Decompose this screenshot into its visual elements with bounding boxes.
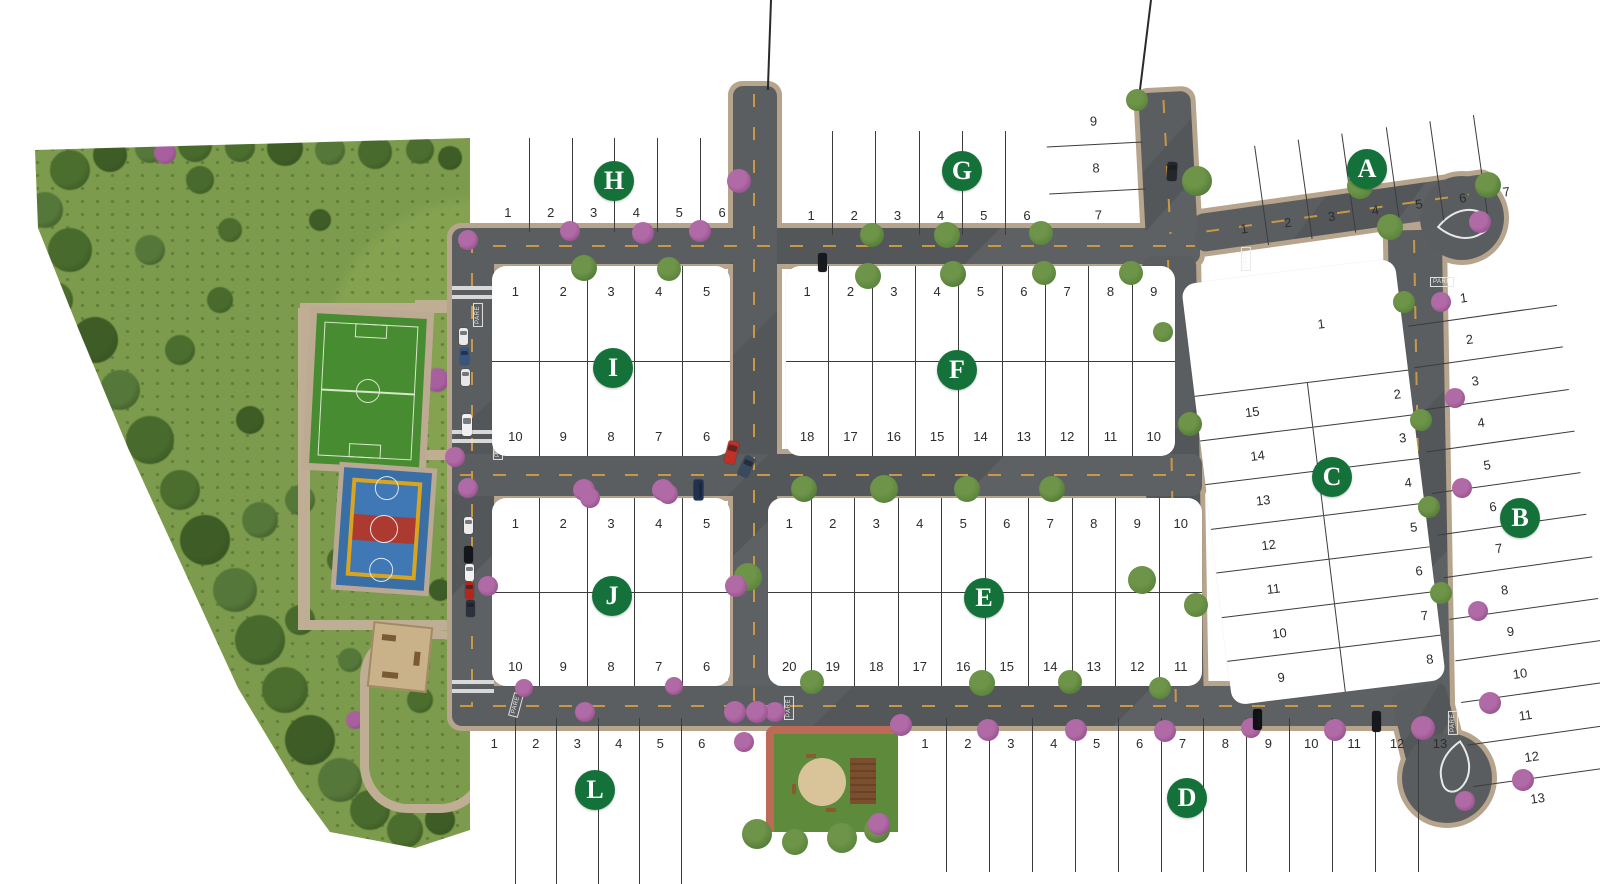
flowering-bush-icon — [1324, 719, 1346, 741]
street-tree-icon — [1430, 582, 1452, 604]
lot-number: 13 — [1073, 659, 1116, 674]
goal-box — [349, 443, 382, 459]
lot-number: 1 — [786, 284, 828, 299]
street-tree-icon — [657, 257, 681, 281]
lot-number: 9 — [540, 659, 587, 674]
street-tree-icon — [1377, 214, 1403, 240]
lot[interactable]: 3 — [989, 718, 1032, 872]
lot[interactable]: 9 — [539, 593, 587, 687]
lot-number: 3 — [1398, 430, 1407, 446]
flowering-bush-icon — [580, 488, 600, 508]
street-tree-icon — [1184, 593, 1208, 617]
flowering-bush-icon — [734, 732, 754, 752]
lot-number: 4 — [1404, 475, 1413, 491]
park-track — [766, 726, 898, 734]
lot[interactable]: 7 — [634, 362, 682, 457]
park-tree-icon — [126, 416, 174, 464]
park-path — [298, 308, 310, 630]
street-tree-icon — [1418, 496, 1440, 518]
lot-number: 5 — [963, 208, 1005, 223]
lot-number: 10 — [1512, 665, 1528, 682]
lot[interactable]: 7 — [1028, 498, 1072, 592]
lot-number: 3 — [855, 516, 898, 531]
lot[interactable]: 1 — [492, 266, 539, 361]
car-icon — [1372, 711, 1381, 732]
lot[interactable]: 8 — [1047, 143, 1145, 194]
lot-number: 8 — [1425, 652, 1434, 668]
lot-number: 5 — [1482, 457, 1491, 473]
car-icon — [818, 253, 827, 272]
basketball-court — [336, 467, 432, 591]
flowering-bush-icon — [575, 702, 595, 722]
block-F: 123456789181716151413121110 — [786, 266, 1175, 456]
flowering-bush-icon — [445, 447, 465, 467]
lot-number: 6 — [986, 516, 1029, 531]
lot-number: 1 — [1240, 307, 1402, 342]
flowering-bush-icon — [458, 478, 478, 498]
lot[interactable]: 2 — [529, 138, 572, 232]
street-tree-icon — [1058, 670, 1082, 694]
street-tree-icon — [1178, 412, 1202, 436]
lot-row: 181716151413121110 — [786, 361, 1175, 457]
park-tree-icon — [93, 138, 127, 172]
lot[interactable]: 7 — [1049, 189, 1147, 240]
street-tree-icon — [782, 829, 808, 855]
lot[interactable]: 2 — [946, 718, 989, 872]
park-tree-icon — [180, 515, 230, 565]
lot[interactable]: 5 — [657, 138, 700, 232]
lot-number: 2 — [530, 205, 572, 220]
lot[interactable]: 3 — [587, 266, 635, 361]
block-G: 123456 — [790, 131, 1048, 235]
street-tree-icon — [1182, 166, 1212, 196]
lot-number: 2 — [516, 736, 557, 751]
lot-number: 2 — [1465, 331, 1474, 347]
park-tree-icon — [160, 470, 200, 510]
lot-number: 3 — [1309, 206, 1354, 227]
street-tree-icon — [954, 476, 980, 502]
flowering-bush-icon — [632, 222, 654, 244]
park-tree-icon — [72, 317, 118, 363]
lot-number: 3 — [876, 208, 918, 223]
lot[interactable]: 10 — [492, 593, 539, 687]
lot[interactable]: 13 — [1418, 718, 1461, 872]
lot-number: 6 — [682, 736, 723, 751]
lot-number: 2 — [833, 208, 875, 223]
block-badge-D: D — [1167, 778, 1207, 818]
lot-number: 9 — [1133, 284, 1175, 299]
lot[interactable]: 6 — [985, 498, 1029, 592]
lot-number: 10 — [1160, 516, 1203, 531]
lot[interactable]: 16 — [872, 362, 915, 457]
lot-number: 8 — [1089, 284, 1131, 299]
car-icon — [464, 546, 473, 563]
lane-dash — [753, 94, 755, 706]
lot[interactable]: 1 — [492, 498, 539, 592]
lot-number: 4 — [635, 516, 682, 531]
lot-number: 3 — [557, 736, 598, 751]
lot-number: 9 — [540, 429, 587, 444]
lot-number: 6 — [1414, 563, 1423, 579]
flowering-bush-icon — [1468, 601, 1488, 621]
crosswalk — [452, 680, 494, 696]
lot-number: 12 — [1260, 536, 1276, 553]
street-tree-icon — [1039, 476, 1065, 502]
lot-number: 14 — [1250, 448, 1266, 465]
lot-number: 11 — [1266, 581, 1281, 598]
flowering-bush-icon — [1154, 720, 1176, 742]
park-tree-icon — [48, 228, 92, 272]
flowering-bush-icon — [515, 679, 533, 697]
court-arc — [374, 475, 400, 501]
lot[interactable]: 2 — [515, 718, 557, 884]
lot-number: 3 — [588, 516, 635, 531]
park-tree-icon — [315, 135, 345, 165]
park-tree-icon — [186, 166, 214, 194]
lot-number: 3 — [1471, 373, 1480, 389]
lot[interactable]: 3 — [875, 131, 918, 235]
flowering-bush-icon — [727, 169, 751, 193]
lot-number: 10 — [492, 429, 539, 444]
park-tree-icon — [236, 406, 264, 434]
lot-number: 2 — [1393, 386, 1402, 402]
lot[interactable]: 1 — [768, 498, 811, 592]
lot-number: 2 — [812, 516, 855, 531]
flowering-bush-icon — [868, 813, 890, 835]
lot[interactable]: 12 — [1115, 593, 1159, 687]
block-badge-B: B — [1500, 498, 1540, 538]
lot-number: 3 — [573, 205, 615, 220]
block-G-annex: 987 — [1044, 96, 1147, 241]
bench-icon — [806, 754, 816, 758]
lot-number: 4 — [599, 736, 640, 751]
car-icon — [1167, 162, 1178, 181]
park-tree-icon — [218, 218, 242, 242]
street-tree-icon — [1475, 172, 1501, 198]
sand-circle — [798, 758, 846, 806]
flowering-bush-icon — [458, 230, 478, 250]
flowering-bush-icon — [665, 677, 683, 695]
flowering-bush-icon — [977, 719, 999, 741]
lot[interactable]: 7 — [634, 593, 682, 687]
lot-number: 17 — [899, 659, 942, 674]
lot-number: 12 — [1376, 736, 1418, 751]
lot-number: 9 — [1045, 111, 1142, 131]
park-track — [766, 726, 774, 832]
bench-icon — [792, 784, 796, 794]
lane-dash — [460, 705, 1405, 707]
lot[interactable]: 17 — [828, 362, 871, 457]
lot-number: 8 — [1073, 516, 1116, 531]
lot[interactable]: 9 — [1246, 718, 1289, 872]
lot-number: 11 — [1518, 707, 1533, 724]
lot[interactable]: 8 — [1072, 498, 1116, 592]
block-badge-E: E — [964, 578, 1004, 618]
lot-number: 11 — [1089, 429, 1131, 444]
car-icon — [1253, 709, 1262, 730]
lot-number: 2 — [540, 284, 587, 299]
lot-number: 9 — [1247, 736, 1289, 751]
lot-number: 8 — [588, 429, 635, 444]
lot-number: 5 — [658, 205, 700, 220]
street-tree-icon — [1393, 291, 1415, 313]
flowering-bush-icon — [1411, 716, 1435, 740]
lot[interactable]: 13 — [1002, 362, 1045, 457]
park-tree-icon — [242, 502, 278, 538]
flowering-bush-icon — [724, 701, 746, 723]
goal-box — [355, 323, 388, 339]
lot-number: 6 — [1488, 499, 1497, 515]
lot[interactable]: 9 — [539, 362, 587, 457]
lot-number: 4 — [615, 205, 657, 220]
lot[interactable]: 2 — [539, 498, 587, 592]
park-tree-icon — [338, 648, 362, 672]
lot-row: 123456789 — [786, 266, 1175, 361]
park-tree-icon — [100, 370, 140, 410]
lot-number: 15 — [916, 429, 958, 444]
lot-number: 10 — [1133, 429, 1175, 444]
court-arc — [368, 557, 394, 583]
lot-number: 4 — [899, 516, 942, 531]
lot[interactable]: 4 — [898, 498, 942, 592]
lot-number: 5 — [959, 284, 1001, 299]
park-tree-icon — [37, 282, 73, 318]
car-icon — [465, 564, 474, 581]
lot[interactable]: 10 — [492, 362, 539, 457]
lot[interactable]: 10 — [1159, 498, 1203, 592]
lot-number: 7 — [635, 659, 682, 674]
lot-number: 8 — [1048, 158, 1145, 178]
lot-number: 3 — [588, 284, 635, 299]
park-tree-icon — [213, 568, 257, 612]
boundary-line — [1138, 0, 1152, 96]
lot-number: 7 — [1050, 205, 1147, 225]
lot-number: 8 — [588, 659, 635, 674]
flowering-bush-icon — [1455, 791, 1475, 811]
lot[interactable]: 5 — [682, 498, 730, 592]
lot[interactable]: 1 — [790, 131, 832, 235]
lot-number: 6 — [683, 429, 730, 444]
lot[interactable]: 17 — [898, 593, 942, 687]
lot-number: 1 — [474, 736, 515, 751]
flowering-bush-icon — [1445, 388, 1465, 408]
lot-row: 12345 — [492, 266, 730, 361]
lot-number: 11 — [1160, 659, 1203, 674]
lot-number: 7 — [1029, 516, 1072, 531]
lot[interactable]: 5 — [682, 266, 730, 361]
flowering-bush-icon — [725, 575, 747, 597]
street-tree-icon — [969, 670, 995, 696]
lot-number: 13 — [1255, 492, 1271, 509]
park-tree-icon — [235, 615, 285, 665]
lot[interactable]: 8 — [1203, 718, 1246, 872]
lot-number: 3 — [990, 736, 1032, 751]
lot-number: 7 — [1494, 540, 1503, 556]
park-tree-icon — [438, 146, 462, 170]
lot[interactable]: 11 — [1332, 718, 1375, 872]
lot-number: 6 — [1119, 736, 1161, 751]
street-tree-icon — [1029, 221, 1053, 245]
lot[interactable]: 2 — [811, 498, 855, 592]
lot-number: 5 — [640, 736, 681, 751]
lot[interactable]: 2 — [832, 131, 875, 235]
lot[interactable]: 4 — [634, 266, 682, 361]
lot[interactable]: 5 — [639, 718, 681, 884]
lot[interactable]: 18 — [786, 362, 828, 457]
playground — [367, 621, 434, 693]
car-icon — [462, 414, 472, 436]
park-tree-icon — [267, 130, 303, 166]
flowering-bush-icon — [1479, 692, 1501, 714]
block-badge-G: G — [942, 151, 982, 191]
lot[interactable]: 1 — [786, 266, 828, 361]
lot-number: 4 — [920, 208, 962, 223]
flowering-bush-icon — [1452, 478, 1472, 498]
lot-number: 1 — [790, 208, 832, 223]
street-tree-icon — [571, 255, 597, 281]
boundary-line — [767, 0, 772, 90]
park-tree-icon — [207, 287, 233, 313]
lot-number: 9 — [1116, 516, 1159, 531]
lot-number: 6 — [1003, 284, 1045, 299]
lot-number: 8 — [1500, 582, 1509, 598]
car-icon — [464, 517, 473, 534]
lot-number: 9 — [1277, 670, 1286, 686]
flowering-bush-icon — [560, 221, 580, 241]
lot[interactable]: 1 — [487, 138, 529, 232]
park-tree-icon — [358, 135, 392, 169]
wood-deck — [850, 758, 876, 804]
lot-number: 15 — [986, 659, 1029, 674]
lot[interactable]: 12 — [1375, 718, 1418, 872]
lot-number: 17 — [829, 429, 871, 444]
lot[interactable]: 5 — [1075, 718, 1118, 872]
park-tree-icon — [387, 812, 423, 848]
car-icon — [466, 600, 475, 617]
park-tree-icon — [309, 209, 331, 231]
lot[interactable]: 13 — [1072, 593, 1116, 687]
lane-dash — [460, 245, 1195, 247]
flowering-bush-icon — [1065, 719, 1087, 741]
lot-number: 18 — [786, 429, 828, 444]
street-tree-icon — [860, 223, 884, 247]
block-badge-L: L — [575, 770, 615, 810]
lot[interactable]: 10 — [1132, 362, 1175, 457]
block-badge-F: F — [937, 350, 977, 390]
lot[interactable]: 4 — [634, 498, 682, 592]
lot[interactable]: 6 — [682, 362, 730, 457]
lot[interactable]: 3 — [854, 498, 898, 592]
park-tree-icon — [165, 335, 195, 365]
lot-number: 14 — [959, 429, 1001, 444]
car-icon — [459, 328, 468, 345]
street-tree-icon — [1119, 261, 1143, 285]
flowering-bush-icon — [1431, 292, 1451, 312]
lot[interactable]: 5 — [941, 498, 985, 592]
flowering-bush-icon — [425, 368, 449, 392]
lot-number: 3 — [873, 284, 915, 299]
site-plan: PAREPAREPAREPAREPAREPAREPARE 12345612345… — [0, 0, 1600, 884]
street-tree-icon — [1128, 566, 1156, 594]
flowering-bush-icon — [154, 142, 176, 164]
lot[interactable]: 6 — [681, 718, 723, 884]
lot[interactable]: 1 — [904, 718, 946, 872]
lot-number: 1 — [1222, 218, 1267, 239]
street-tree-icon — [1149, 677, 1171, 699]
park-tree-icon — [406, 136, 434, 164]
street-tree-icon — [1126, 89, 1148, 111]
lot-number: 1 — [1459, 289, 1468, 305]
park-tree-icon — [50, 150, 90, 190]
lot-number: 5 — [1409, 519, 1418, 535]
park-tree-icon — [285, 715, 335, 765]
playground-equipment-icon — [382, 634, 397, 641]
lot-number: 6 — [701, 205, 743, 220]
lot-number: 5 — [1397, 194, 1442, 215]
bench-icon — [826, 808, 836, 812]
block-badge-H: H — [594, 161, 634, 201]
soccer-field — [309, 313, 427, 469]
lot-number: 6 — [683, 659, 730, 674]
lot-number: 16 — [873, 429, 915, 444]
street-tree-icon — [742, 819, 772, 849]
street-tree-icon — [1410, 409, 1432, 431]
block-badge-A: A — [1347, 149, 1387, 189]
lot[interactable]: 10 — [1289, 718, 1332, 872]
park-tree-icon — [262, 667, 308, 713]
street-tree-icon — [1153, 322, 1173, 342]
flowering-bush-icon — [765, 702, 785, 722]
lot[interactable]: 6 — [1118, 718, 1161, 872]
lot-number: 9 — [1506, 624, 1515, 640]
lot-number: 2 — [540, 516, 587, 531]
lot-number: 4 — [1477, 415, 1486, 431]
crosswalk — [452, 430, 494, 446]
lot-number: 10 — [1271, 625, 1287, 642]
lot-row: 123456 — [790, 131, 1048, 235]
lot[interactable]: 1 — [474, 718, 515, 884]
lot[interactable]: 4 — [1032, 718, 1075, 872]
block-badge-I: I — [593, 348, 633, 388]
court-frame — [346, 478, 423, 581]
lot-number: 13 — [1003, 429, 1045, 444]
lot-number: 10 — [1290, 736, 1332, 751]
lot[interactable]: 5 — [958, 266, 1001, 361]
street-tree-icon — [934, 222, 960, 248]
park-tree-icon — [27, 192, 63, 228]
lot-number: 12 — [1046, 429, 1088, 444]
lot-number: 1 — [492, 516, 539, 531]
block-badge-C: C — [1312, 457, 1352, 497]
car-icon — [694, 480, 704, 501]
lot-number: 1 — [487, 205, 529, 220]
park-tree-icon — [178, 128, 212, 162]
flowering-bush-icon — [746, 701, 768, 723]
flowering-bush-icon — [689, 220, 711, 242]
lot[interactable]: 18 — [854, 593, 898, 687]
pare-road-marking: PARE — [1241, 247, 1251, 271]
street-tree-icon — [791, 476, 817, 502]
lot[interactable]: 11 — [1088, 362, 1131, 457]
lot[interactable]: 12 — [1045, 362, 1088, 457]
flowering-bush-icon — [80, 495, 100, 515]
lot-number: 5 — [942, 516, 985, 531]
street-tree-icon — [855, 263, 881, 289]
lot[interactable]: 6 — [682, 593, 730, 687]
lot-number: 7 — [635, 429, 682, 444]
car-icon — [461, 369, 470, 386]
lot[interactable]: 6 — [1005, 131, 1048, 235]
